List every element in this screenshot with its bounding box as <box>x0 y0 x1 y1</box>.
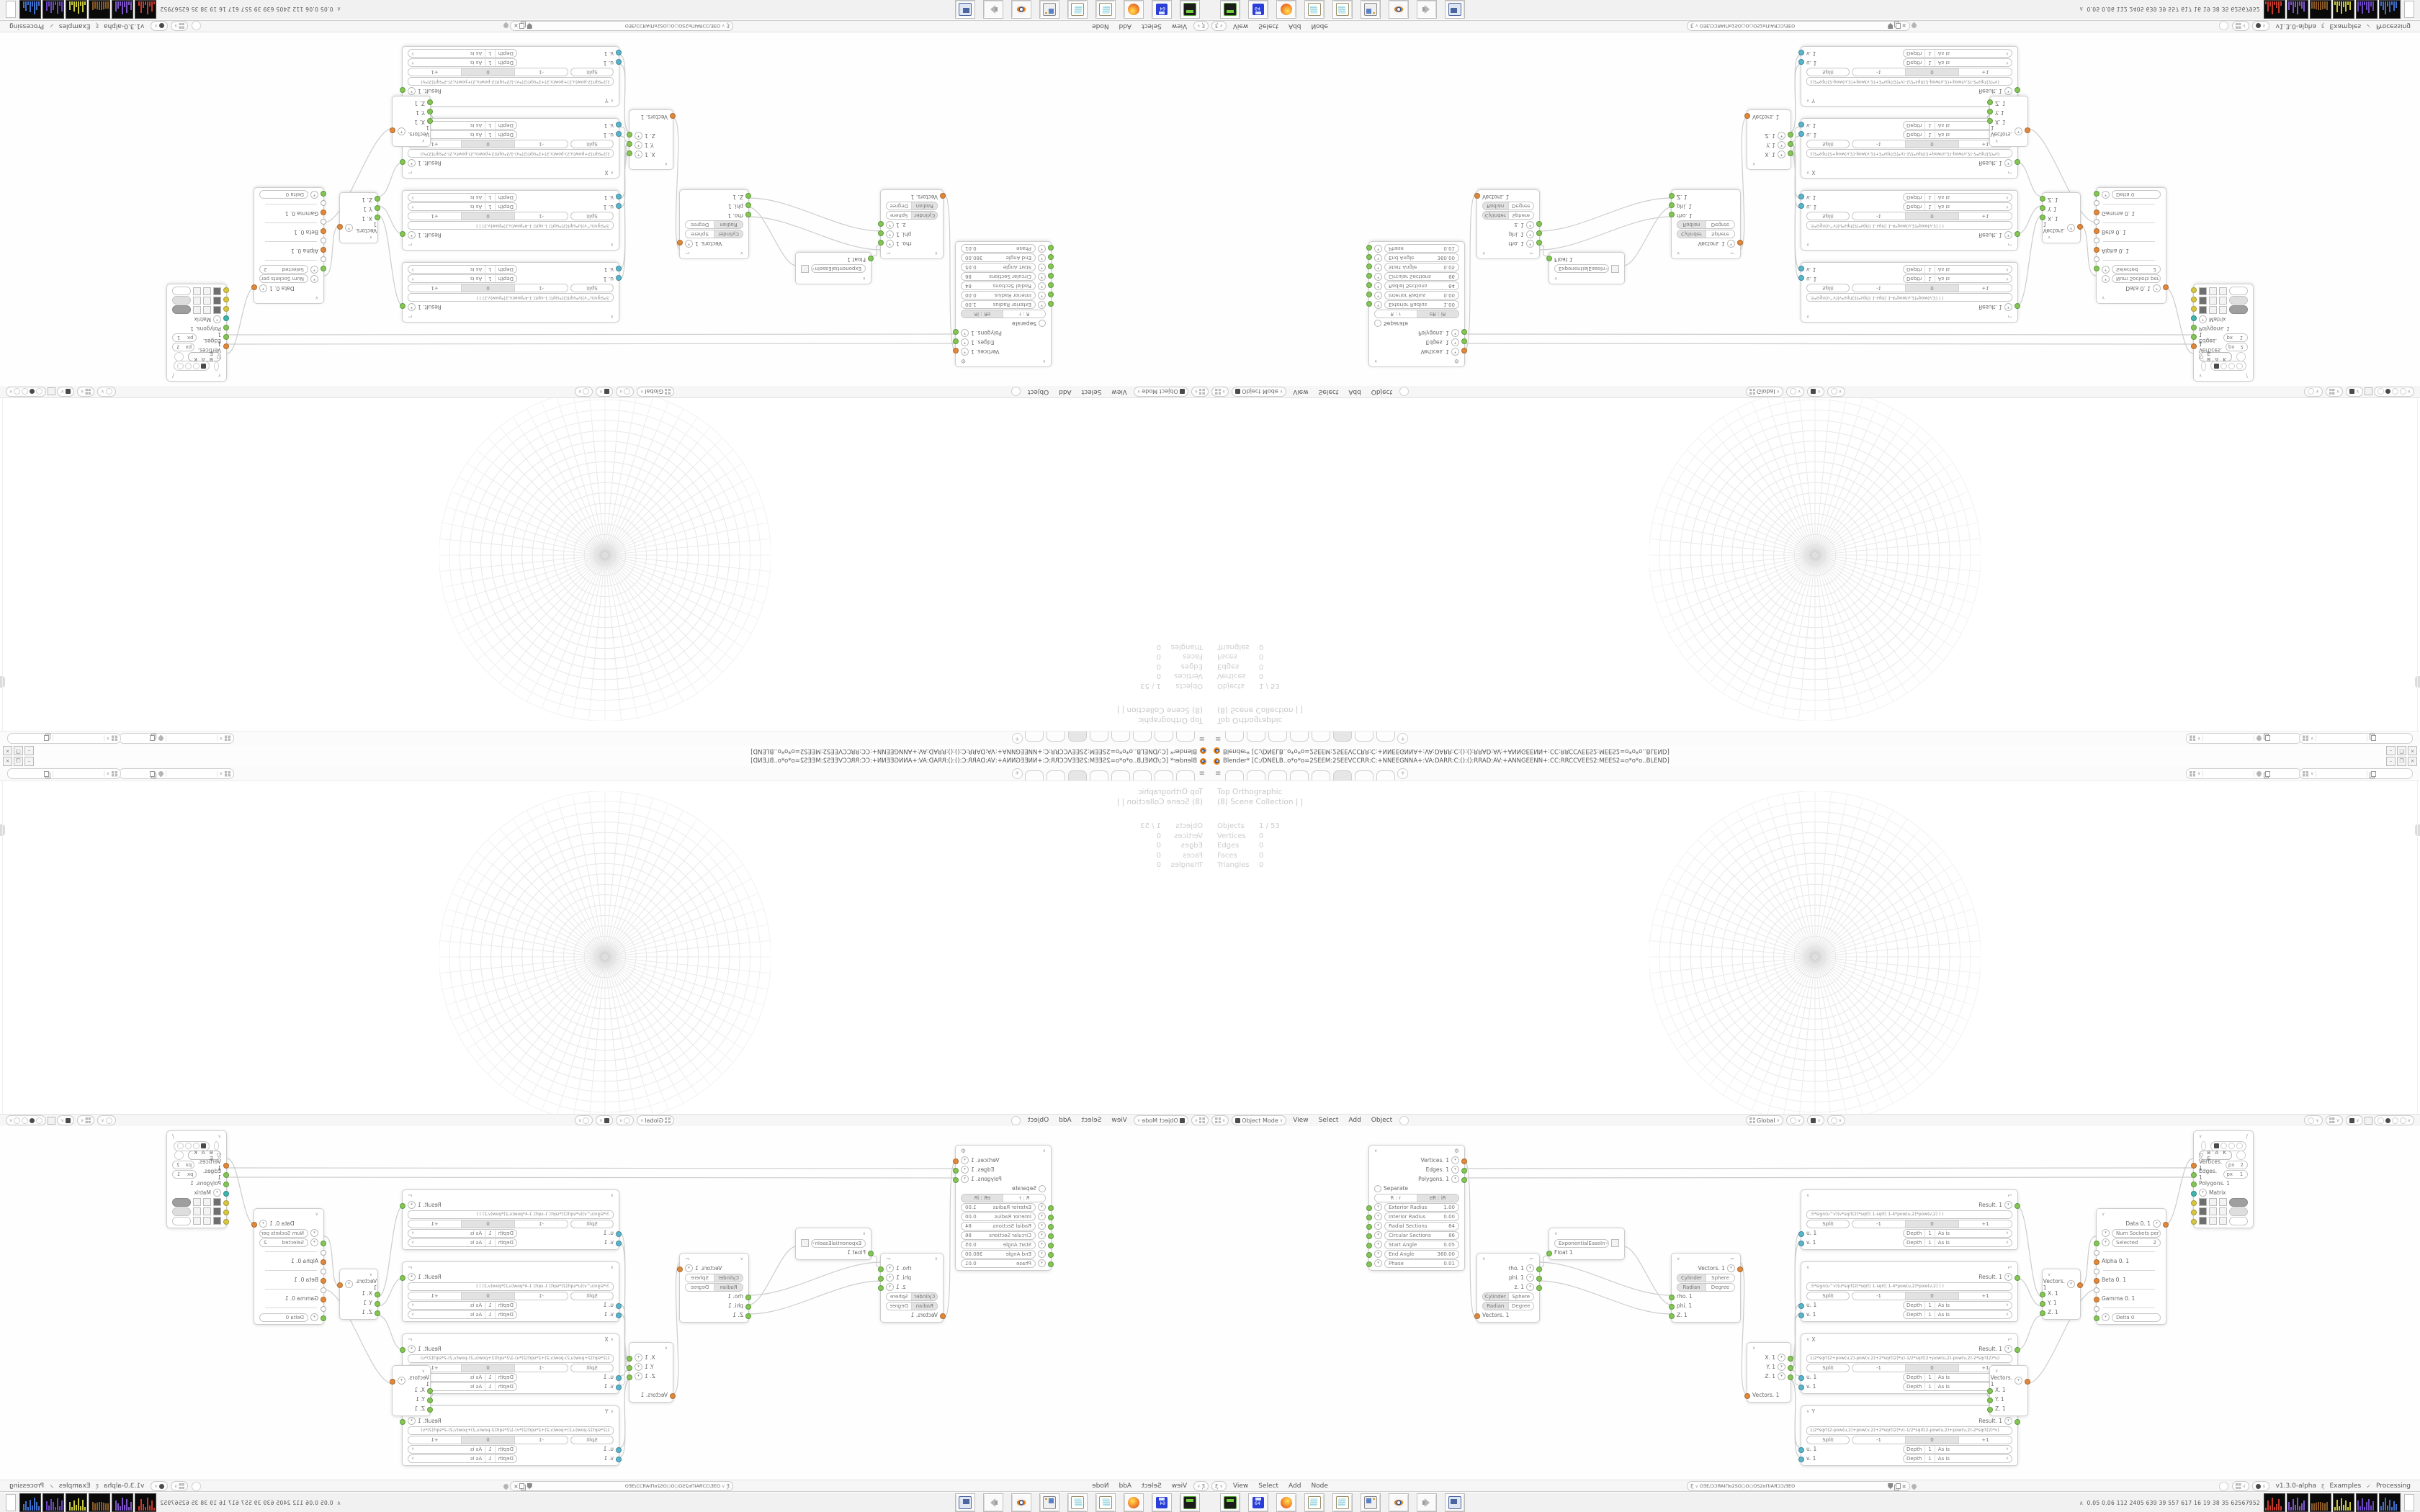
display-circle-icon[interactable] <box>2201 361 2206 371</box>
node-socket[interactable] <box>223 1182 229 1187</box>
node-menu-view[interactable]: View <box>1172 22 1187 30</box>
dropdown-circle-icon[interactable]: ▾ <box>1778 1363 1785 1371</box>
workspace-tab-6[interactable] <box>1047 732 1065 742</box>
viewport-menu-view[interactable]: View <box>1293 388 1308 395</box>
node-socket[interactable] <box>627 142 632 148</box>
curve-icon[interactable] <box>2219 1217 2227 1225</box>
dropdown-circle-icon[interactable]: ▾ <box>886 1283 894 1291</box>
formula-field-row[interactable]: .5*sign(u^v)(v*sqrt(2)*sqrt( 1-sqrt( 1-4… <box>1801 1210 2017 1219</box>
range-option[interactable]: +1 <box>1958 1436 2012 1444</box>
formula-field-row[interactable]: 1/2*sqrt(2+pow(u,2)-pow(v,2)+2*sqrt(2)*u… <box>1801 149 2017 158</box>
node-title-row[interactable]: ∨∕ <box>2194 371 2253 380</box>
dropdown-circle-icon[interactable]: ▾ <box>2004 159 2012 167</box>
depth-selector[interactable]: Depth1As is∨ <box>408 1229 517 1238</box>
node-socket[interactable] <box>390 1379 395 1385</box>
formula-node-x[interactable]: ∨X⌐Result. 1▾1/2*sqrt(2+pow(u,2)-pow(v,2… <box>1801 118 2018 179</box>
toggle-row[interactable]: RadianDegree <box>1477 1301 1539 1310</box>
dropdown-circle-icon[interactable]: ▾ <box>2004 1201 2012 1209</box>
checkbox-row[interactable]: Separate <box>1369 319 1464 328</box>
chart-icon[interactable] <box>203 1217 211 1225</box>
depth-selector[interactable]: Depth1As is∨ <box>1903 1445 2012 1454</box>
value-field-row[interactable]: ▾Circular Sections86 <box>1369 1230 1464 1240</box>
cylindrical-to-vector[interactable]: ∨⌐Vectors. 1▾CylinderSphereRadianDegreer… <box>1671 1253 1741 1323</box>
vector-to-cylindrical[interactable]: ∨⌐rho. 1▾phi. 1▾z. 1▾CylinderSphereRadia… <box>880 1253 944 1323</box>
toggle-option[interactable]: Degree <box>686 222 714 229</box>
node-socket[interactable] <box>321 1297 326 1302</box>
node-title-row[interactable]: ∨ <box>629 159 673 168</box>
toggle-option[interactable]: Sphere <box>1508 1293 1534 1300</box>
taskbar-notepad-2-button[interactable] <box>1067 0 1088 19</box>
node-title-row[interactable]: ∨Y⌐ <box>1801 96 2017 105</box>
xray-toggle-button[interactable]: ∨ <box>2346 387 2362 397</box>
chart-icon[interactable] <box>2209 1198 2217 1206</box>
data-type-icon[interactable] <box>213 287 221 295</box>
node-socket[interactable] <box>2015 1275 2020 1281</box>
range-option[interactable]: 0 <box>462 1292 515 1300</box>
proportional-editing-selector[interactable]: ∨ <box>575 387 593 397</box>
data-field[interactable] <box>172 297 191 305</box>
node-socket[interactable] <box>400 232 405 238</box>
toggle-option[interactable]: Cylinder <box>1677 1274 1706 1282</box>
value-field-row[interactable]: ▾End Angle360.00 <box>956 253 1051 263</box>
show-overlays-button[interactable]: ∨ <box>2326 387 2343 397</box>
tool-circle-button[interactable] <box>2219 22 2228 31</box>
node-socket[interactable] <box>1798 1385 1804 1390</box>
depth-selector[interactable]: Depth1As is∨ <box>408 1445 517 1454</box>
value-field-row[interactable]: ▾End Angle360.00 <box>956 1249 1051 1259</box>
unlink-icon[interactable]: × <box>514 1483 519 1490</box>
node-menu-node[interactable]: Node <box>1092 22 1109 30</box>
node-socket[interactable] <box>1048 1261 1054 1267</box>
curve-icon[interactable] <box>193 1198 201 1206</box>
viewport-menu-select[interactable]: Select <box>1319 1117 1339 1124</box>
range-option[interactable]: 0 <box>1905 1436 1958 1444</box>
node-option-icon[interactable]: ∕ <box>172 372 174 379</box>
node-socket[interactable] <box>1461 1168 1467 1174</box>
viewlayer-name-field[interactable] <box>2316 770 2367 777</box>
node-socket[interactable] <box>745 1304 751 1310</box>
name-field-row[interactable]: ▾Selected2 <box>2097 265 2166 274</box>
px-value-field[interactable]: px2 <box>2226 343 2248 352</box>
formula-node-1[interactable]: ∨⌐Result. 1▾.5*sign(u^v)(v*sqrt(2)*sqrt(… <box>402 262 619 323</box>
split-range-row[interactable]: Split-10+1 <box>403 1219 619 1228</box>
dropdown-circle-icon[interactable]: ▾ <box>1374 282 1382 290</box>
node-socket[interactable] <box>1366 1252 1372 1258</box>
toggle-option[interactable]: Radian <box>1483 1302 1508 1310</box>
node-socket[interactable] <box>375 1292 380 1297</box>
transform-orientation-selector[interactable]: Global ∨ <box>637 387 674 397</box>
show-overlays-button[interactable]: ∨ <box>77 387 94 397</box>
node-title-row[interactable]: ∨Y⌐ <box>403 1407 619 1416</box>
taskbar-window-app-button[interactable] <box>1361 0 1381 19</box>
node-socket[interactable] <box>223 1219 229 1225</box>
split-button[interactable]: Split <box>1806 140 1850 149</box>
toggle-option[interactable]: Degree <box>1706 1284 1734 1291</box>
viewport-menu-object[interactable]: Object <box>1371 388 1392 395</box>
curve-icon[interactable] <box>193 1217 201 1225</box>
px-value-field[interactable]: px1 <box>172 1170 197 1179</box>
node-socket[interactable] <box>1474 1313 1480 1319</box>
split-range-row[interactable]: Split-10+1 <box>403 140 619 149</box>
dropdown-circle-icon[interactable]: ▾ <box>1727 1264 1735 1272</box>
toggle-option[interactable]: Cylinder <box>1483 1293 1508 1300</box>
refresh-icon[interactable] <box>2236 352 2246 361</box>
node-socket[interactable] <box>1669 1304 1675 1310</box>
dropdown-circle-icon[interactable]: ▾ <box>1038 1241 1046 1248</box>
node-socket[interactable] <box>1744 114 1750 120</box>
tray-histogram[interactable] <box>135 1493 156 1512</box>
workspace-tab-7[interactable] <box>1376 770 1395 780</box>
formula-field-row[interactable]: .5*sign(u^v)(v*sqrt(2)*sqrt( 1-sqrt( 1-4… <box>403 1210 619 1219</box>
data-field[interactable] <box>172 1198 191 1207</box>
render-preview-button[interactable] <box>48 388 55 396</box>
viewlayer-name-field[interactable] <box>53 770 104 777</box>
range-option[interactable]: 0 <box>1905 1364 1958 1372</box>
new-viewlayer-icon[interactable] <box>2370 771 2375 777</box>
mode-selector[interactable]: Object Mode ∨ <box>1232 1115 1286 1125</box>
dropdown-circle-icon[interactable]: ▾ <box>2102 1313 2110 1321</box>
fake-user-shield-icon[interactable] <box>1888 1483 1893 1489</box>
node-menu-view[interactable]: View <box>1233 1482 1248 1490</box>
node-socket[interactable] <box>2094 201 2099 207</box>
dropdown-circle-icon[interactable]: ▾ <box>961 338 969 346</box>
display-circle-icon[interactable] <box>214 361 219 371</box>
depth-selector[interactable]: Depth1As is∨ <box>408 50 517 58</box>
tray-histogram[interactable] <box>2310 1493 2331 1512</box>
node-socket[interactable] <box>878 1276 884 1282</box>
display-mode-icons[interactable] <box>2210 361 2246 372</box>
curve-preview-icon[interactable] <box>801 1239 809 1247</box>
node-editor[interactable]: ∨⚙Vertices. 1▾Edges. 1▾Polygons. 1▾Separ… <box>1210 1126 2420 1480</box>
data-type-icon[interactable] <box>2199 1198 2207 1206</box>
formula-node-2[interactable]: ∨⌐Result. 1▾.5*sign(u^v)(u*sqrt(2)*sqrt(… <box>402 1261 619 1322</box>
workspace-tab-3[interactable] <box>1111 770 1130 780</box>
node-socket[interactable] <box>1669 1313 1675 1319</box>
node-socket[interactable] <box>1798 1241 1804 1246</box>
toggle-row[interactable]: R : reR : iR <box>1369 310 1464 319</box>
dropdown-circle-icon[interactable]: ▾ <box>1038 1250 1046 1258</box>
node-socket[interactable] <box>878 1266 884 1272</box>
node-socket[interactable] <box>953 1158 959 1164</box>
split-range-row[interactable]: Split-10+1 <box>1801 1219 2017 1228</box>
chart-icon[interactable] <box>203 306 211 314</box>
editor-type-button[interactable]: ∨ <box>1191 1115 1209 1125</box>
node-title-row[interactable]: ∨⌐ <box>680 248 748 258</box>
viewlayer-name-field[interactable] <box>53 735 104 742</box>
split-button[interactable]: Split <box>1806 284 1850 293</box>
app-menu-icon[interactable]: ≡ <box>1215 735 1221 743</box>
workspace-tab-4[interactable] <box>1312 732 1330 742</box>
range-option[interactable]: -1 <box>515 141 568 148</box>
value-field-row[interactable]: ▾Interior Radius0.00 <box>956 291 1051 300</box>
dropdown-circle-icon[interactable]: ▾ <box>1374 1203 1382 1211</box>
display-circle-icon[interactable] <box>2201 1141 2206 1151</box>
dropdown-circle-icon[interactable]: ▾ <box>2004 303 2012 311</box>
range-option[interactable]: +1 <box>408 69 462 76</box>
dropdown-circle-icon[interactable]: ▾ <box>1727 240 1735 248</box>
range-option[interactable]: -1 <box>515 69 568 76</box>
range-option[interactable]: +1 <box>1958 213 2012 220</box>
value-field-row[interactable]: ▾Radial Sections64 <box>1369 282 1464 291</box>
range-option[interactable]: 0 <box>1905 285 1958 292</box>
dropdown-circle-icon[interactable]: ▾ <box>259 284 267 292</box>
node-socket[interactable] <box>1798 1303 1804 1309</box>
data-field[interactable] <box>2229 1207 2248 1216</box>
node-option-icon[interactable]: ⌐ <box>2007 241 2012 248</box>
formula-field-row[interactable]: .5*sign(u^v)(u*sqrt(2)*sqrt( 1-sqrt( 1-4… <box>403 221 619 230</box>
node-socket[interactable] <box>427 1407 433 1413</box>
bake-output-node[interactable]: ∨∕▽B A K EVertices. 1px2Edges. 1px1Polyg… <box>166 284 227 382</box>
taskbar-window-app-button[interactable] <box>1039 0 1059 19</box>
dropdown-circle-icon[interactable]: ▾ <box>1038 1212 1046 1220</box>
formula-field-row[interactable]: .5*sign(u^v)(u*sqrt(2)*sqrt( 1-sqrt( 1-4… <box>1801 221 2017 230</box>
curve-icon[interactable] <box>2219 287 2227 295</box>
scene-name-field[interactable] <box>2202 770 2254 777</box>
node-socket[interactable] <box>2015 1347 2020 1353</box>
tray-histogram[interactable] <box>66 0 87 19</box>
toggle-option[interactable]: Cylinder <box>913 212 938 220</box>
dropdown-circle-icon[interactable]: ▾ <box>1778 1372 1785 1380</box>
dropdown-circle-icon[interactable]: ▾ <box>2102 266 2110 274</box>
close-button[interactable]: × <box>2408 746 2417 755</box>
dropdown-circle-icon[interactable]: ▾ <box>1374 1231 1382 1239</box>
node-title-row[interactable]: ∨⌐ <box>403 312 619 321</box>
range-option[interactable]: +1 <box>408 1436 462 1444</box>
snap-settings-button[interactable]: ∨ <box>2232 1481 2249 1491</box>
processing-toggle[interactable]: Processing <box>9 22 44 30</box>
value-field-row[interactable]: ▾End Angle360.00 <box>1369 1249 1464 1259</box>
curve-preview-icon[interactable] <box>1611 265 1619 273</box>
toggle-option[interactable]: Radian <box>714 222 743 229</box>
viewport-menu-object[interactable]: Object <box>1028 388 1049 395</box>
data-sockets-node[interactable]: ∨Data 0. 1▾▾Num Sockets per set1▾Selecte… <box>2096 1208 2166 1325</box>
formula-field-row[interactable]: .5*sign(u^v)(v*sqrt(2)*sqrt( 1-sqrt( 1-4… <box>403 293 619 302</box>
dropdown-circle-icon[interactable]: ▾ <box>408 87 416 95</box>
split-button[interactable]: Split <box>1806 1220 1850 1228</box>
new-scene-icon[interactable] <box>2264 771 2269 777</box>
split-range-row[interactable]: Split-10+1 <box>403 68 619 77</box>
taskbar-window-app-button[interactable] <box>1361 1493 1381 1512</box>
value-field-row[interactable]: ▾Phase0.01 <box>1369 1259 1464 1268</box>
editor-type-button[interactable]: ∨ <box>1191 387 1209 397</box>
node-socket[interactable] <box>677 240 683 246</box>
range-option[interactable]: 0 <box>462 1220 515 1228</box>
dropdown-circle-icon[interactable]: ▾ <box>2004 1273 2012 1281</box>
name-field-row[interactable]: ▾Delta 0 <box>2097 1313 2166 1322</box>
workspace-tab-0[interactable] <box>1176 732 1195 742</box>
annotate-tool-button[interactable] <box>1399 387 1409 397</box>
workspace-tab-4[interactable] <box>1312 770 1330 780</box>
toggle-option[interactable]: Cylinder <box>1483 212 1508 220</box>
node-title-row[interactable]: ∨ <box>1747 1344 1791 1353</box>
value-field-row[interactable]: ▾Radial Sections64 <box>956 1221 1051 1230</box>
node-socket[interactable] <box>223 1163 229 1169</box>
node-option-icon[interactable]: ⌐ <box>1730 250 1735 256</box>
show-gizmo-button[interactable]: ∨ <box>97 387 115 397</box>
node-tree-breadcrumb[interactable]: ξ∨ OƎE/ƆƆЯAIΠ¤2SO○O○OS2¤ΠIAЯƆƆ/ƎEO × <box>1687 21 1910 31</box>
chart-icon[interactable] <box>2209 287 2217 295</box>
node-socket[interactable] <box>1798 1447 1804 1453</box>
node-menu-add[interactable]: Add <box>1289 22 1301 30</box>
node-title-row[interactable]: ∨⌐ <box>1477 248 1539 258</box>
node-title-row[interactable]: ∨⌐ <box>1801 1191 2017 1200</box>
annotate-tool-button[interactable] <box>1011 387 1021 397</box>
tray-histogram[interactable] <box>2264 0 2285 19</box>
node-title-row[interactable]: ∨⌐ <box>680 1254 748 1264</box>
range-option[interactable]: 0 <box>462 285 515 292</box>
depth-selector[interactable]: Depth1As is∨ <box>408 266 517 274</box>
taskbar-speaker-button[interactable] <box>1417 1493 1437 1512</box>
dropdown-circle-icon[interactable]: ▾ <box>345 224 353 232</box>
name-field-row[interactable]: ▾Delta 0 <box>254 1313 323 1322</box>
node-title-row[interactable]: ∨ <box>1747 159 1791 168</box>
toggle-option[interactable]: R : r <box>1375 1194 1417 1202</box>
workspace-tab-6[interactable] <box>1355 732 1373 742</box>
data-type-icon[interactable] <box>213 1207 221 1215</box>
range-option[interactable]: -1 <box>1852 141 1905 148</box>
node-socket[interactable] <box>616 1241 622 1246</box>
ease-mode-selector[interactable]: ExponentialEaseIn∨ <box>796 1238 871 1248</box>
px-value-field[interactable]: px1 <box>2223 1170 2248 1179</box>
data-sockets-node[interactable]: ∨Data 0. 1▾▾Num Sockets per set1▾Selecte… <box>254 187 324 304</box>
node-option-icon[interactable]: ⌐ <box>2007 1192 2012 1199</box>
viewlayer-selector[interactable]: ∨ <box>7 733 121 744</box>
dropdown-circle-icon[interactable]: ▾ <box>310 266 318 274</box>
pin-icon[interactable] <box>157 770 164 778</box>
range-option[interactable]: -1 <box>1852 213 1905 220</box>
ease-node[interactable]: ∨ExponentialEaseIn∨Float 1 <box>1549 1228 1625 1260</box>
split-range-row[interactable]: Split-10+1 <box>403 212 619 221</box>
dropdown-circle-icon[interactable]: ▾ <box>1526 1264 1534 1272</box>
node-option-icon[interactable]: ⌐ <box>886 250 891 256</box>
dropdown-circle-icon[interactable]: ▾ <box>886 221 894 229</box>
node-tree-breadcrumb[interactable]: ξ∨ OƎE/ƆƆЯAIΠ¤2SO○O○OS2¤ΠIAЯƆƆ/ƎEO × <box>510 1481 733 1491</box>
dropdown-circle-icon[interactable]: ▾ <box>2102 191 2110 199</box>
node-menu-node[interactable]: Node <box>1311 1482 1328 1490</box>
node-socket[interactable] <box>2094 1269 2099 1274</box>
dropdown-circle-icon[interactable]: ▾ <box>635 141 642 149</box>
taskbar-floppy-64-button[interactable] <box>1152 1493 1172 1512</box>
dropdown-circle-icon[interactable]: ▾ <box>1374 273 1382 281</box>
formula-field-row[interactable]: 1/2*sqrt(2-pow(u,2)+pow(v,2)+2*sqrt(2)*v… <box>403 77 619 86</box>
formula-node-x[interactable]: ∨X⌐Result. 1▾1/2*sqrt(2+pow(u,2)-pow(v,2… <box>1801 1333 2018 1394</box>
tray-histogram[interactable] <box>112 0 133 19</box>
examples-menu[interactable]: Examples <box>59 1482 91 1490</box>
node-socket[interactable] <box>337 1282 343 1288</box>
dropdown-circle-icon[interactable]: ▾ <box>961 329 969 337</box>
node-option-icon[interactable]: ∕ <box>2246 372 2248 379</box>
px-value-field[interactable]: px2 <box>2226 1161 2248 1169</box>
dropdown-circle-icon[interactable]: ▾ <box>2153 1220 2161 1228</box>
xray-toggle-button[interactable]: ∨ <box>57 1115 73 1125</box>
node-socket[interactable] <box>2094 1306 2099 1312</box>
formula-node-1[interactable]: ∨⌐Result. 1▾.5*sign(u^v)(v*sqrt(2)*sqrt(… <box>1801 1189 2018 1250</box>
taskbar-floppy-64-button[interactable] <box>1152 0 1172 19</box>
app-menu-icon[interactable]: ≡ <box>1199 735 1205 743</box>
dropdown-circle-icon[interactable]: ▾ <box>2199 1189 2207 1197</box>
range-option[interactable]: +1 <box>408 213 462 220</box>
close-button[interactable]: × <box>3 746 12 755</box>
node-title-row[interactable]: ∨⌐ <box>403 1191 619 1200</box>
range-option[interactable]: -1 <box>515 213 568 220</box>
combine-vectors-2[interactable]: ∨Vectors. 1▾X. 1Y. 1Z. 1 <box>1989 96 2028 147</box>
node-title-row[interactable]: ∨⚙ <box>956 1146 1051 1156</box>
value-field-row[interactable]: ▾Exterior Radius1.00 <box>956 300 1051 310</box>
3d-viewport[interactable]: Top Orthographic (8) Scene Collection | … <box>1210 781 2420 1114</box>
pin-icon[interactable] <box>157 735 164 742</box>
tool-circle-button[interactable] <box>192 1482 201 1491</box>
processing-toggle[interactable]: Processing <box>2376 22 2411 30</box>
toggle-option[interactable]: Sphere <box>887 1293 913 1300</box>
workspace-tab-1[interactable] <box>1247 732 1265 742</box>
split-range-row[interactable]: Split-10+1 <box>403 1291 619 1300</box>
node-socket[interactable] <box>2191 1210 2197 1215</box>
node-option-icon[interactable]: ⌐ <box>408 1336 413 1343</box>
node-socket[interactable] <box>2040 1310 2045 1316</box>
node-editor-type-button[interactable]: ξ∨ <box>1193 1481 1209 1491</box>
taskbar-monitor-button[interactable] <box>955 1493 975 1512</box>
value-field-row[interactable]: ▾Exterior Radius1.00 <box>956 1202 1051 1212</box>
dropdown-circle-icon[interactable]: ▾ <box>1451 329 1459 337</box>
dropdown-circle-icon[interactable]: ▾ <box>2004 1417 2012 1425</box>
depth-selector[interactable]: Depth1As is∨ <box>408 59 517 68</box>
tray-histogram[interactable] <box>89 1493 110 1512</box>
formula-field-row[interactable]: 1/2*sqrt(2+pow(u,2)-pow(v,2)+2*sqrt(2)*u… <box>1801 1354 2017 1363</box>
restore-button[interactable]: ❒ <box>14 757 23 766</box>
node-socket[interactable] <box>251 1222 257 1228</box>
node-title-row[interactable]: ∨⌐ <box>1801 1263 2017 1272</box>
3d-viewport[interactable]: Top Orthographic (8) Scene Collection | … <box>1210 398 2420 731</box>
workspace-tab-5[interactable] <box>1333 770 1352 780</box>
split-range-row[interactable]: Split-10+1 <box>1801 1291 2017 1300</box>
app-menu-icon[interactable]: ≡ <box>1199 770 1205 778</box>
node-title-row[interactable]: ∨X⌐ <box>1801 168 2017 177</box>
dropdown-circle-icon[interactable]: ▾ <box>1038 301 1046 309</box>
name-field-row[interactable]: ▾Selected2 <box>2097 1238 2166 1247</box>
node-option-icon[interactable]: ⌐ <box>886 1256 891 1262</box>
node-title-row[interactable]: ∨⌐ <box>1477 1254 1539 1264</box>
node-socket[interactable] <box>321 1278 326 1284</box>
node-title-row[interactable]: ∨⌐ <box>1801 312 2017 321</box>
ease-node[interactable]: ∨ExponentialEaseIn∨Float 1 <box>795 1228 871 1260</box>
node-socket[interactable] <box>427 1388 433 1394</box>
dropdown-circle-icon[interactable]: ▾ <box>310 1238 318 1246</box>
data-sockets-node[interactable]: ∨Data 0. 1▾▾Num Sockets per set1▾Selecte… <box>2096 187 2166 304</box>
node-socket[interactable] <box>2191 1191 2197 1197</box>
curve-icon[interactable] <box>2219 297 2227 305</box>
toggle-row[interactable]: RadianDegree <box>881 202 943 211</box>
range-option[interactable]: +1 <box>408 1220 462 1228</box>
workspace-tab-6[interactable] <box>1355 770 1373 780</box>
restore-button[interactable]: ❒ <box>2397 746 2406 755</box>
data-type-icon[interactable] <box>2199 287 2207 295</box>
examples-menu[interactable]: Examples <box>2330 1482 2362 1490</box>
split-button[interactable]: Split <box>1806 1436 1850 1444</box>
node-socket[interactable] <box>223 1191 229 1197</box>
viewport-menu-add[interactable]: Add <box>1348 388 1361 395</box>
node-socket[interactable] <box>375 1310 380 1316</box>
toggle-option[interactable]: Degree <box>887 1302 913 1310</box>
node-socket[interactable] <box>321 1250 326 1256</box>
node-socket[interactable] <box>2191 325 2197 331</box>
dropdown-circle-icon[interactable]: ▾ <box>886 240 894 248</box>
data-type-icon[interactable] <box>2199 1217 2207 1225</box>
node-option-icon[interactable]: ⌐ <box>1529 1256 1534 1262</box>
range-option[interactable]: 0 <box>462 69 515 76</box>
workspace-tab-3[interactable] <box>1290 770 1309 780</box>
tray-histogram[interactable] <box>2379 0 2401 19</box>
torus-generator[interactable]: ∨⚙Vertices. 1▾Edges. 1▾Polygons. 1▾Separ… <box>955 241 1052 367</box>
